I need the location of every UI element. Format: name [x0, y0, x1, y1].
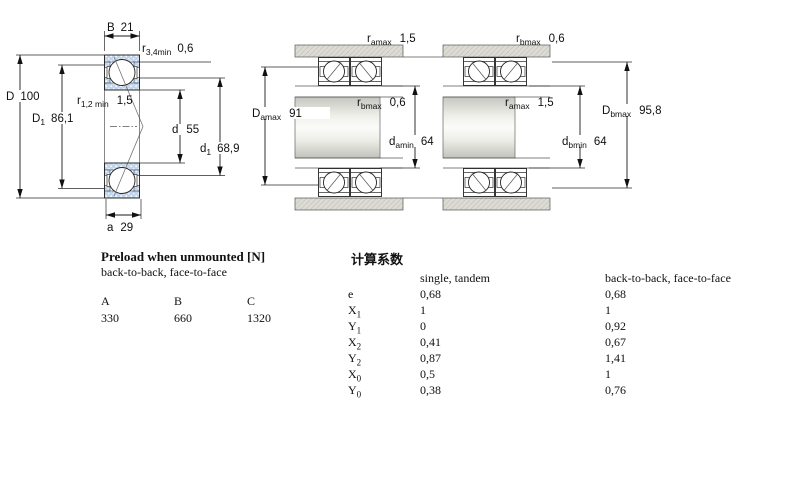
preload-value-B: 660	[174, 311, 247, 327]
dim-label-a: a29	[107, 222, 133, 234]
housing-bottom	[443, 198, 550, 210]
factors-title: 计算系数	[351, 249, 795, 265]
figure-single-bearing-section: B21 r3,4min0,6 D100 D186,1 r1,2 min1,5 d…	[4, 22, 240, 234]
factor-X2-paired: 0,67	[605, 335, 795, 351]
dim-label-ra-max: ramax1,5	[367, 33, 416, 47]
factor-X2-single: 0,41	[420, 335, 605, 351]
factor-X0-single: 0,5	[420, 367, 605, 383]
figure-mounting-abutment-b: rbmax0,6 ramax1,5 Dbmax95,8 dbmin64	[443, 33, 670, 210]
bearing-diagrams: B21 r3,4min0,6 D100 D186,1 r1,2 min1,5 d…	[0, 0, 800, 245]
preload-col-A: A	[101, 294, 174, 310]
dim-label-outer-diameter-D: D100	[6, 91, 40, 103]
factor-e-single: 0,68	[420, 287, 605, 303]
factor-Y0-paired: 0,76	[605, 383, 795, 399]
factor-X0-paired: 1	[605, 367, 795, 383]
factor-label-Y1: Y1	[348, 319, 420, 335]
factor-Y2-single: 0,87	[420, 351, 605, 367]
dim-label-D1: D186,1	[32, 113, 73, 127]
dimension-lines	[529, 62, 632, 188]
factor-label-X1: X1	[348, 303, 420, 319]
factor-Y1-paired: 0,92	[605, 319, 795, 335]
preload-value-A: 330	[101, 311, 174, 327]
preload-value-C: 1320	[247, 311, 320, 327]
factors-grid: single, tandem back-to-back, face-to-fac…	[348, 271, 795, 399]
factor-Y2-paired: 1,41	[605, 351, 795, 367]
factor-X1-paired: 1	[605, 303, 795, 319]
dim-label-d1: d168,9	[200, 143, 240, 157]
factor-label-X0: X0	[348, 367, 420, 383]
housing-bottom	[295, 198, 403, 210]
dim-label-rb-max: rbmax0,6	[516, 33, 565, 47]
dim-label-r34min: r3,4min0,6	[142, 43, 193, 57]
factor-Y1-single: 0	[420, 319, 605, 335]
factor-label-Y0: Y0	[348, 383, 420, 399]
calculation-factors-table: 计算系数 single, tandem back-to-back, face-t…	[348, 249, 795, 399]
factor-label-Y2: Y2	[348, 351, 420, 367]
factor-Y0-single: 0,38	[420, 383, 605, 399]
factors-header-single-tandem: single, tandem	[420, 271, 605, 287]
factor-label-e: e	[348, 287, 420, 303]
dim-label-bore-d: d55	[172, 124, 199, 136]
figure-mounting-abutment-a: ramax1,5 rbmax0,6 Damax91 damin64	[250, 33, 460, 210]
dim-label-r12min: r1,2 min1,5	[77, 95, 133, 109]
preload-col-C: C	[247, 294, 320, 310]
factors-header-paired: back-to-back, face-to-face	[605, 271, 795, 287]
dim-label-width-B: B21	[107, 22, 133, 34]
preload-col-B: B	[174, 294, 247, 310]
factor-label-X2: X2	[348, 335, 420, 351]
factor-X1-single: 1	[420, 303, 605, 319]
factor-e-paired: 0,68	[605, 287, 795, 303]
factors-corner-cell	[348, 271, 420, 287]
